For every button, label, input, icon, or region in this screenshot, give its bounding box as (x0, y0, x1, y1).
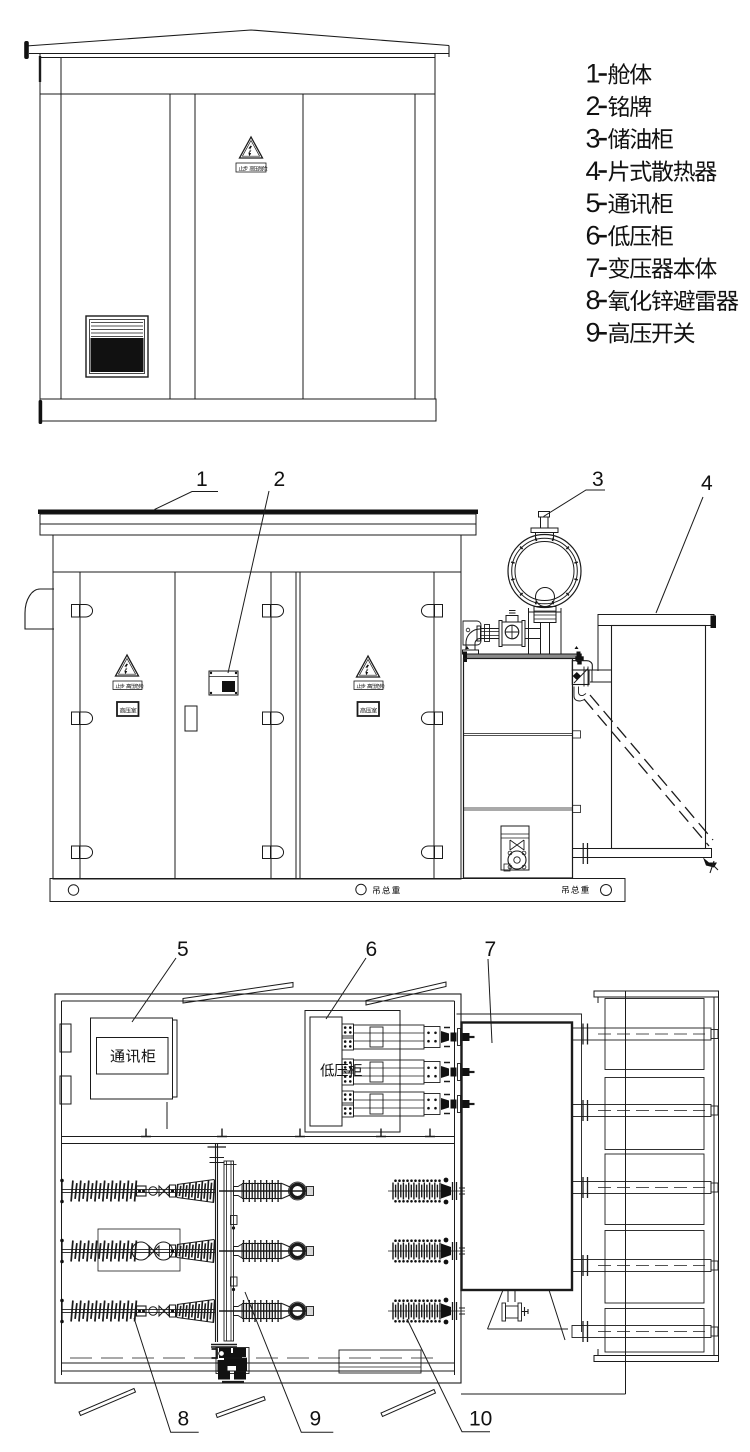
svg-text:5: 5 (177, 938, 189, 961)
svg-text:6: 6 (366, 938, 378, 961)
svg-text:10: 10 (469, 1408, 492, 1431)
svg-text:1: 1 (196, 468, 208, 491)
svg-text:4: 4 (586, 156, 601, 186)
svg-text:9: 9 (586, 318, 601, 348)
svg-text:9: 9 (310, 1408, 322, 1431)
svg-text:8: 8 (586, 285, 601, 315)
svg-text:1: 1 (586, 59, 601, 89)
svg-text:8: 8 (178, 1408, 190, 1431)
svg-text:7: 7 (485, 938, 497, 961)
svg-text:2: 2 (274, 468, 286, 491)
svg-text:4: 4 (701, 472, 713, 495)
svg-text:6: 6 (586, 220, 601, 250)
svg-text:3: 3 (592, 468, 604, 491)
svg-text:7: 7 (586, 253, 601, 283)
svg-text:3: 3 (586, 123, 601, 153)
svg-text:5: 5 (586, 188, 601, 218)
svg-text:2: 2 (586, 91, 601, 121)
